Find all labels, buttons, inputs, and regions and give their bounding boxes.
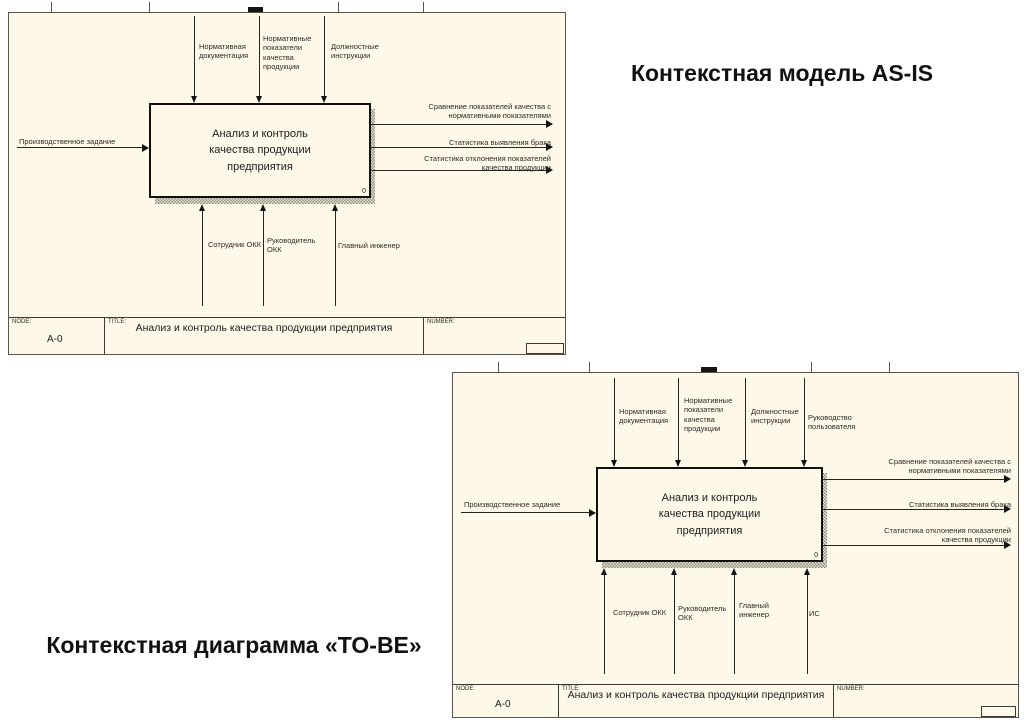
frame-mark [248, 7, 263, 12]
title-value: Анализ и контроль качества продукции пре… [559, 689, 833, 701]
mechanism-arrow-line [604, 575, 605, 674]
output-arrow-line [822, 545, 1005, 546]
node-tag: NODE: [456, 686, 475, 692]
process-box: Анализ и контроль качества продукции пре… [149, 103, 371, 198]
control-label: Руководство пользователя [808, 413, 856, 432]
mechanism-arrow-line [734, 575, 735, 674]
frame-tick [811, 362, 812, 372]
number-tag: NUMBER: [837, 686, 865, 692]
arrowhead-up-icon [332, 204, 338, 211]
node-value: A-0 [495, 699, 511, 710]
frame-tick [589, 362, 590, 372]
mechanism-label: Сотрудник ОКК [613, 608, 666, 617]
node-tag: NODE: [12, 319, 31, 325]
arrowhead-up-icon [260, 204, 266, 211]
input-arrow-line [461, 512, 589, 513]
footer-number-cell: NUMBER: [424, 318, 565, 354]
arrowhead-down-icon [191, 96, 197, 103]
arrowhead-right-icon [546, 120, 553, 128]
title-value: Анализ и контроль качества продукции пре… [105, 322, 423, 334]
arrowhead-down-icon [675, 460, 681, 467]
control-label: Должностные инструкции [751, 407, 799, 426]
arrowhead-up-icon [804, 568, 810, 575]
process-box-number: 0 [814, 552, 818, 559]
control-arrow-line [804, 378, 805, 460]
control-arrow-line [324, 16, 325, 97]
output-label: Сравнение показателей качества с нормати… [428, 102, 551, 121]
arrowhead-down-icon [801, 460, 807, 467]
process-box-number: 0 [362, 188, 366, 195]
control-arrow-line [614, 378, 615, 460]
frame-tick [423, 2, 424, 12]
mechanism-arrow-line [263, 211, 264, 306]
mechanism-label: Руководитель ОКК [267, 236, 315, 255]
arrowhead-up-icon [199, 204, 205, 211]
output-label: Статистика выявления брака [449, 138, 551, 147]
frame-tick [889, 362, 890, 372]
output-arrow-line [370, 124, 547, 125]
arrowhead-down-icon [611, 460, 617, 467]
process-box-label: Анализ и контроль качества продукции пре… [659, 490, 760, 540]
idef0-footer: NODE: A-0 TITLE: Анализ и контроль качес… [453, 684, 1018, 717]
arrowhead-right-icon [589, 509, 596, 517]
asis-heading: Контекстная модель AS-IS [602, 60, 962, 87]
mechanism-arrow-line [674, 575, 675, 674]
output-label: Статистика выявления брака [909, 500, 1011, 509]
node-value: A-0 [47, 334, 63, 345]
arrowhead-down-icon [321, 96, 327, 103]
frame-tick [149, 2, 150, 12]
control-arrow-line [745, 378, 746, 460]
idef0-footer: NODE: A-0 TITLE: Анализ и контроль качес… [9, 317, 565, 354]
mechanism-arrow-line [807, 575, 808, 674]
arrowhead-up-icon [601, 568, 607, 575]
control-label: Должностные инструкции [331, 42, 379, 61]
mechanism-arrow-line [202, 211, 203, 306]
frame-mark [701, 367, 717, 372]
arrowhead-up-icon [731, 568, 737, 575]
footer-title-cell: TITLE: Анализ и контроль качества продук… [105, 318, 424, 354]
footer-node-cell: NODE: A-0 [9, 318, 105, 354]
input-arrow-line [17, 147, 143, 148]
control-label: Нормативные показатели качества продукци… [684, 396, 732, 434]
tobe-heading: Контекстная диаграмма «TO-BE» [38, 632, 430, 659]
process-box-label: Анализ и контроль качества продукции пре… [209, 126, 310, 176]
frame-tick [51, 2, 52, 12]
footer-title-cell: TITLE: Анализ и контроль качества продук… [559, 685, 834, 717]
control-label: Нормативная документация [619, 407, 668, 426]
number-box [981, 706, 1016, 717]
input-label: Производственное задание [19, 137, 115, 146]
control-label: Нормативная документация [199, 42, 248, 61]
mechanism-label: Главный инженер [739, 601, 769, 620]
output-label: Статистика отклонения показателей качест… [884, 526, 1011, 545]
output-label: Сравнение показателей качества с нормати… [888, 457, 1011, 476]
output-arrow-line [822, 479, 1005, 480]
frame-tick [338, 2, 339, 12]
number-tag: NUMBER: [427, 319, 455, 325]
mechanism-arrow-line [335, 211, 336, 306]
slide-canvas: Контекстная модель AS-IS Контекстная диа… [0, 0, 1024, 723]
control-arrow-line [678, 378, 679, 460]
control-arrow-line [194, 16, 195, 97]
arrowhead-right-icon [142, 144, 149, 152]
arrowhead-right-icon [1004, 475, 1011, 483]
mechanism-label: Сотрудник ОКК [208, 240, 261, 249]
control-arrow-line [259, 16, 260, 97]
arrowhead-down-icon [742, 460, 748, 467]
output-label: Статистика отклонения показателей качест… [424, 154, 551, 173]
tobe-diagram-sheet: Нормативная документация Нормативные пок… [452, 372, 1019, 718]
arrowhead-down-icon [256, 96, 262, 103]
footer-number-cell: NUMBER: [834, 685, 1018, 717]
box-shadow [602, 562, 827, 568]
input-label: Производственное задание [464, 500, 560, 509]
footer-node-cell: NODE: A-0 [453, 685, 559, 717]
mechanism-label: Главный инженер [338, 241, 400, 250]
control-label: Нормативные показатели качества продукци… [263, 34, 311, 72]
number-box [526, 343, 564, 354]
mechanism-label: ИС [809, 609, 820, 618]
frame-tick [498, 362, 499, 372]
process-box: Анализ и контроль качества продукции пре… [596, 467, 823, 562]
arrowhead-up-icon [671, 568, 677, 575]
mechanism-label: Руководитель ОКК [678, 604, 726, 623]
asis-diagram-sheet: Нормативная документация Нормативные пок… [8, 12, 566, 355]
